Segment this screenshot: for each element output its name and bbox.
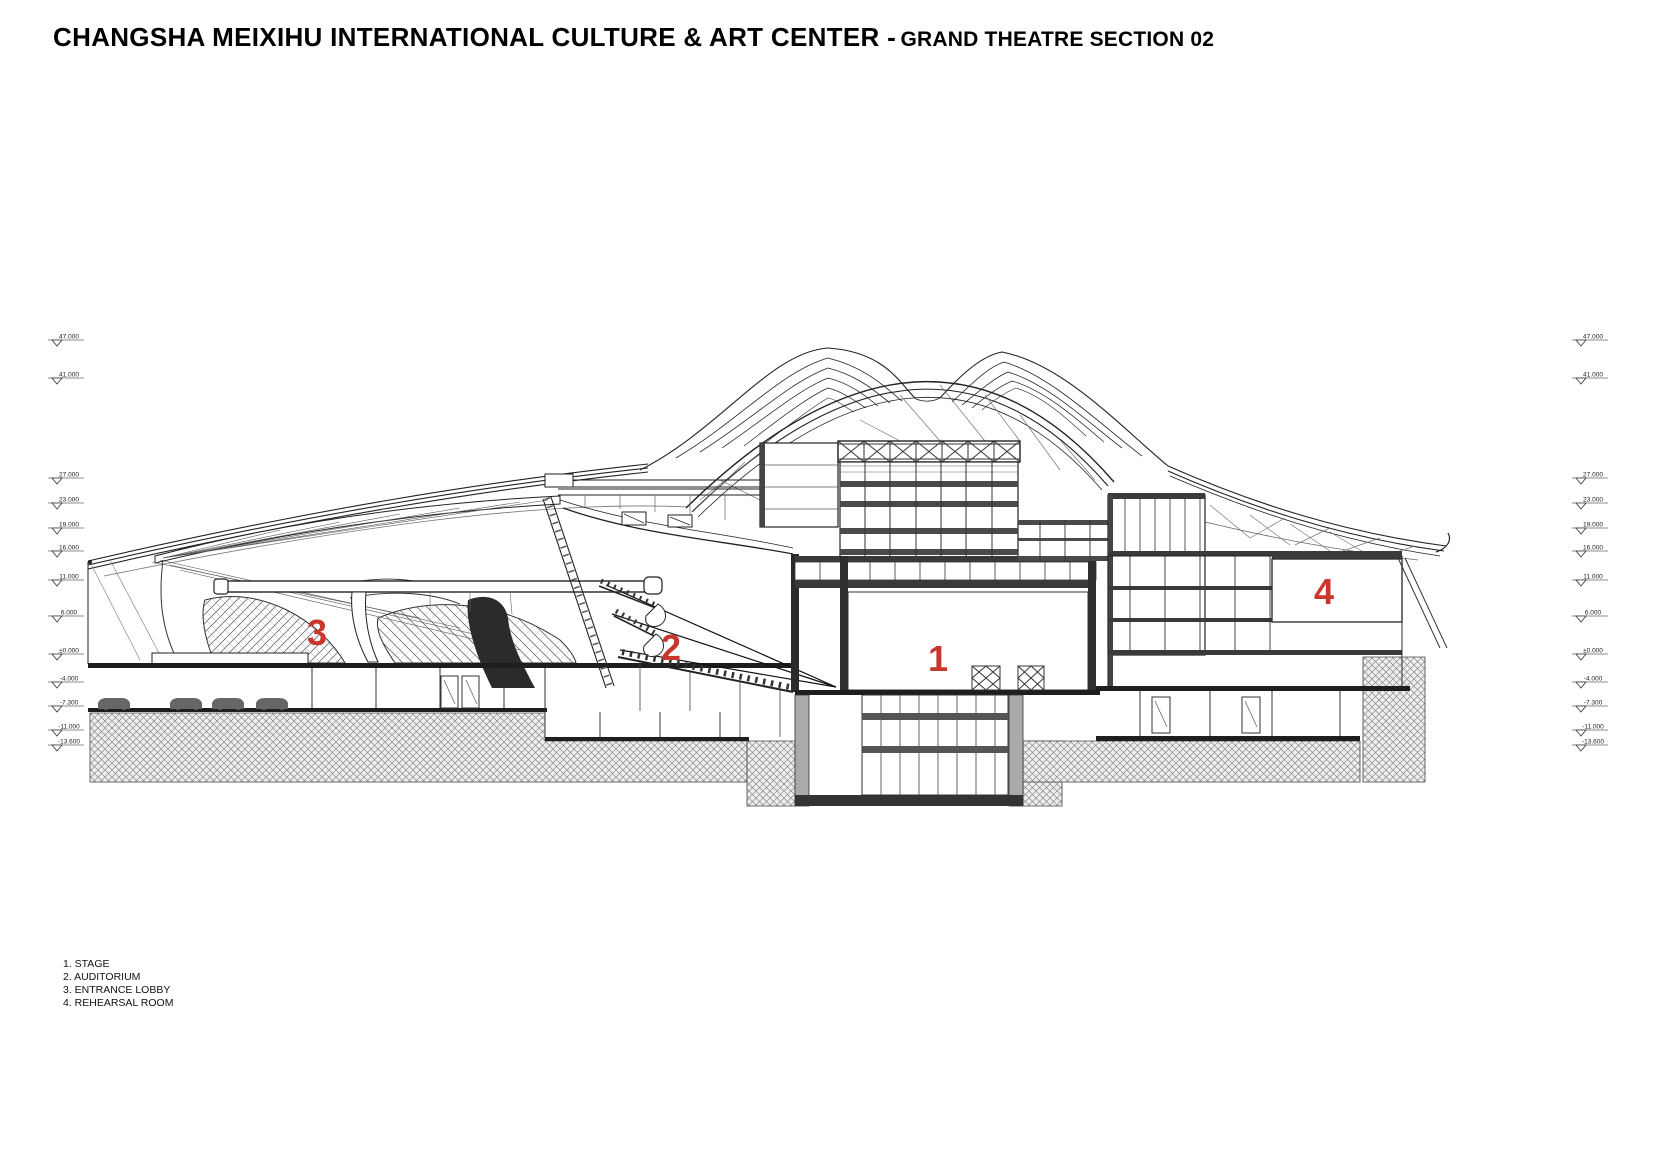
elevation-marker: 41.000: [48, 372, 84, 385]
elevation-marker: -11.000: [1572, 724, 1608, 737]
elevation-label: -13.600: [58, 739, 80, 746]
elevation-label: 11.000: [1583, 574, 1603, 581]
elevation-label: 6.000: [61, 610, 78, 617]
room-legend: 1. STAGE 2. AUDITORIUM 3. ENTRANCE LOBBY…: [63, 958, 173, 1010]
elevation-marker: -7.300: [48, 700, 84, 713]
elevation-marker: -13.600: [48, 739, 84, 752]
elevation-marker: -7.300: [1572, 700, 1608, 713]
elevation-marker: 11.000: [48, 574, 84, 587]
drawing-sheet: CHANGSHA MEIXIHU INTERNATIONAL CULTURE &…: [0, 0, 1653, 1169]
section-drawing: 1234 47.00047.00041.00041.00027.00027.00…: [0, 0, 1653, 1169]
car-icon: [98, 698, 288, 710]
legend-item-entrance-lobby: 3. ENTRANCE LOBBY: [63, 984, 173, 997]
elevation-label: -11.000: [58, 724, 80, 731]
elevation-marker: -4.000: [1572, 676, 1608, 689]
elevation-label: 23.000: [59, 497, 79, 504]
room-number-rehearsal-room: 4: [1314, 571, 1334, 612]
elevation-label: -7.300: [60, 700, 79, 707]
elevation-label: 11.000: [59, 574, 79, 581]
elevation-marker: 11.000: [1572, 574, 1608, 587]
elevation-marker: 41.000: [1572, 372, 1608, 385]
elevation-marker: 23.000: [48, 497, 84, 510]
elevation-marker: 19.000: [1572, 522, 1608, 535]
elevation-label: 19.000: [59, 522, 79, 529]
elevation-label: -4.000: [1584, 676, 1603, 683]
elevation-label: 23.000: [1583, 497, 1603, 504]
room-number-auditorium: 2: [661, 627, 681, 668]
room-number-entrance-lobby: 3: [307, 612, 327, 653]
elevation-marker: 6.000: [48, 610, 84, 623]
stage-right-bridge: [1018, 520, 1108, 561]
legend-item-stage: 1. STAGE: [63, 958, 173, 971]
elevation-label: ±0.000: [1583, 648, 1603, 655]
elevation-marker: 47.000: [1572, 334, 1608, 347]
elevation-marker: -11.000: [48, 724, 84, 737]
elevation-label: 19.000: [1583, 522, 1603, 529]
elevation-marker: 27.000: [1572, 472, 1608, 485]
elevation-marker: 6.000: [1572, 610, 1608, 623]
elevation-marker: 19.000: [48, 522, 84, 535]
elevation-label: ±0.000: [59, 648, 79, 655]
elevation-marker: 27.000: [48, 472, 84, 485]
elevation-label: -13.600: [1582, 739, 1604, 746]
elevation-label: 41.000: [59, 372, 79, 379]
elevation-label: 41.000: [1583, 372, 1603, 379]
elevation-label: 27.000: [1583, 472, 1603, 479]
legend-item-auditorium: 2. AUDITORIUM: [63, 971, 173, 984]
elevation-marker: 16.000: [48, 545, 84, 558]
elevation-label: 16.000: [1583, 545, 1603, 552]
elevation-marker: 47.000: [48, 334, 84, 347]
elevation-marker: 23.000: [1572, 497, 1608, 510]
entrance-lobby: [152, 496, 662, 688]
elevation-label: -11.000: [1582, 724, 1604, 731]
elevation-label: 27.000: [59, 472, 79, 479]
elevation-marker: -4.000: [48, 676, 84, 689]
elevation-label: 47.000: [1583, 334, 1603, 341]
elevation-label: -7.300: [1584, 700, 1603, 707]
elevation-label: 47.000: [59, 334, 79, 341]
room-number-stage: 1: [928, 638, 948, 679]
elevation-marker: ±0.000: [48, 648, 84, 661]
elevation-label: -4.000: [60, 676, 79, 683]
elevation-marker: ±0.000: [1572, 648, 1608, 661]
elevation-label: 6.000: [1585, 610, 1602, 617]
elevation-label: 16.000: [59, 545, 79, 552]
elevation-marker: 16.000: [1572, 545, 1608, 558]
elevation-marker: -13.600: [1572, 739, 1608, 752]
legend-item-rehearsal-room: 4. REHEARSAL ROOM: [63, 997, 173, 1010]
